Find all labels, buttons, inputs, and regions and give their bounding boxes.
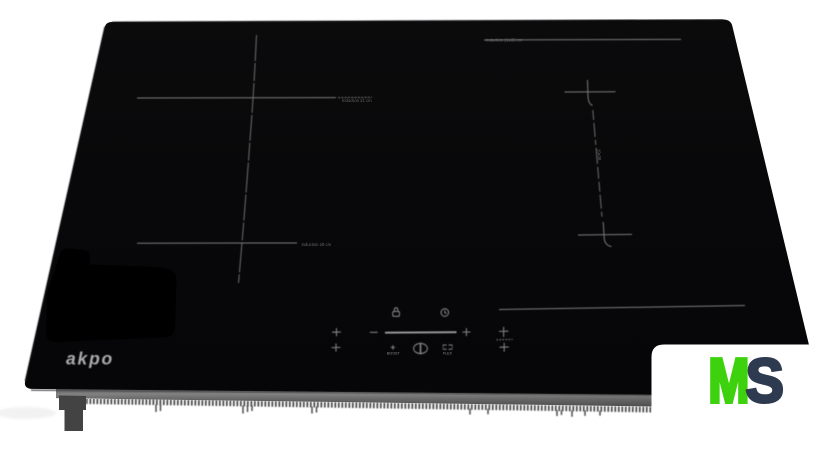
svg-text:BOOST: BOOST: [387, 352, 400, 356]
svg-text:Induction 21 cm: Induction 21 cm: [342, 98, 372, 103]
svg-text:19x38: 19x38: [597, 149, 603, 161]
svg-text:M: M: [709, 345, 750, 415]
svg-text:Induction 28 cm: Induction 28 cm: [302, 242, 332, 247]
svg-text:akpo: akpo: [66, 349, 114, 369]
svg-text:FLEX: FLEX: [443, 352, 453, 356]
svg-text:Induction 19x38 cm: Induction 19x38 cm: [486, 38, 523, 43]
svg-text:S: S: [746, 346, 784, 415]
